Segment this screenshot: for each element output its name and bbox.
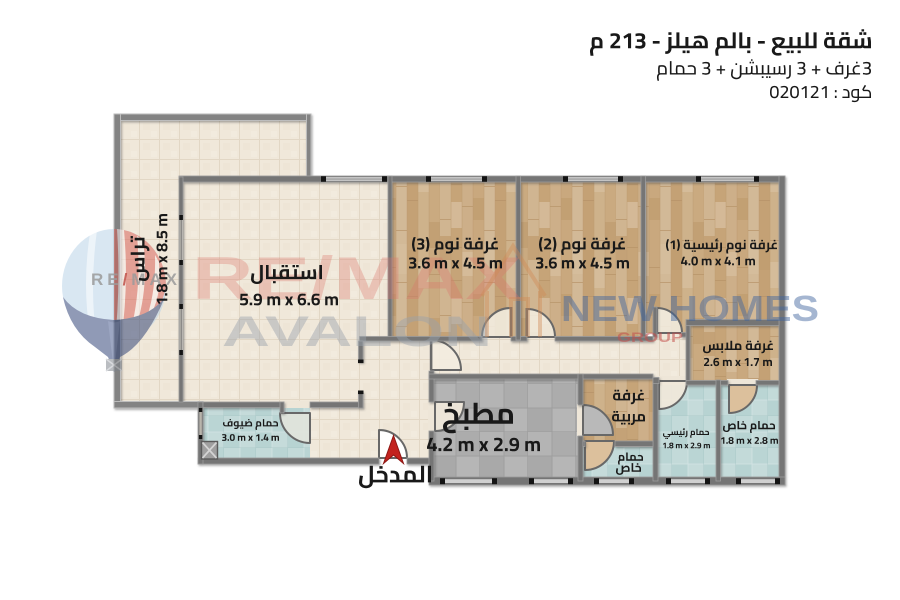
svg-text:GROUP: GROUP xyxy=(617,330,683,345)
svg-text:AVALON: AVALON xyxy=(222,308,492,356)
svg-text:RE/MAX: RE/MAX xyxy=(192,245,522,312)
svg-text:NEW HOMES: NEW HOMES xyxy=(561,288,819,329)
